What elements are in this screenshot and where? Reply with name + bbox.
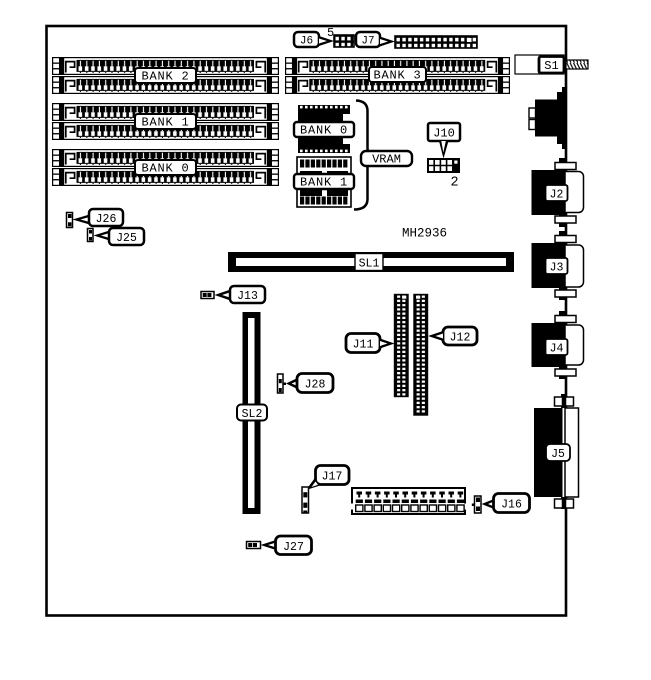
svg-text:BANK 0: BANK 0 (300, 124, 348, 138)
svg-text:J13: J13 (237, 290, 258, 303)
svg-text:BANK 0: BANK 0 (141, 162, 189, 176)
svg-text:J2: J2 (550, 189, 564, 202)
svg-text:J16: J16 (501, 499, 522, 512)
svg-text:J4: J4 (550, 343, 564, 356)
svg-text:J17: J17 (322, 471, 343, 484)
svg-text:J12: J12 (450, 332, 471, 345)
svg-text:J10: J10 (433, 127, 455, 141)
svg-text:BANK 1: BANK 1 (141, 116, 189, 130)
svg-text:J11: J11 (353, 339, 374, 352)
svg-text:BANK 3: BANK 3 (373, 69, 421, 83)
svg-text:J5: J5 (551, 448, 565, 461)
svg-text:S1: S1 (544, 59, 558, 73)
svg-text:J28: J28 (305, 379, 326, 392)
svg-text:2: 2 (451, 176, 459, 191)
svg-text:5: 5 (327, 26, 334, 40)
svg-text:J7: J7 (361, 36, 374, 48)
svg-text:J27: J27 (283, 541, 304, 554)
svg-text:J6: J6 (300, 36, 313, 48)
svg-text:VRAM: VRAM (372, 153, 401, 167)
svg-text:J25: J25 (116, 232, 137, 245)
svg-text:J3: J3 (550, 262, 564, 275)
svg-text:BANK 1: BANK 1 (300, 176, 348, 190)
svg-text:MH2936: MH2936 (402, 227, 447, 241)
svg-text:BANK 2: BANK 2 (141, 70, 189, 84)
svg-text:J26: J26 (96, 213, 117, 226)
svg-text:SL2: SL2 (242, 408, 263, 421)
svg-text:SL1: SL1 (359, 258, 380, 271)
